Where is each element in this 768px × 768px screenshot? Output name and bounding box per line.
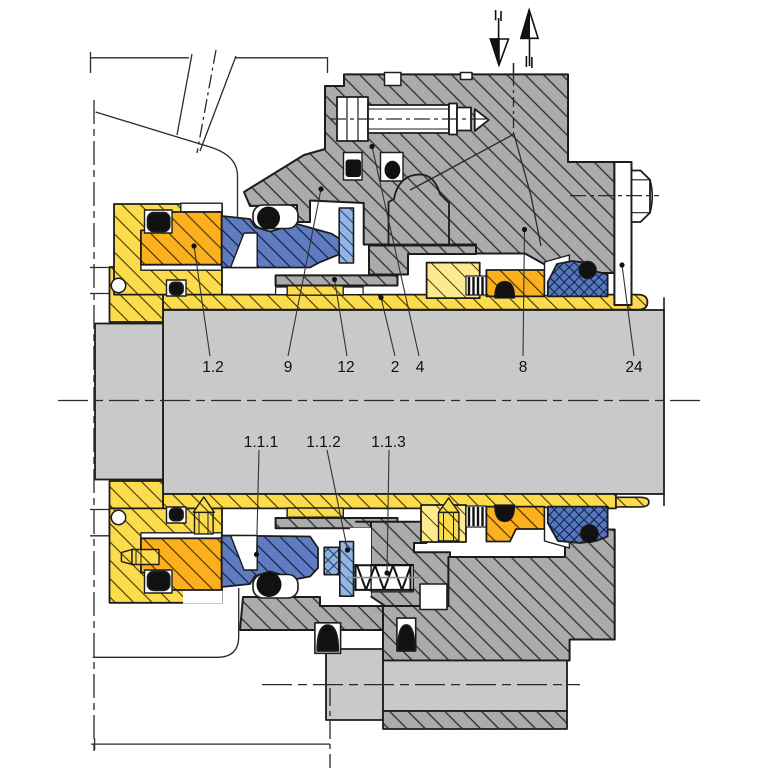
svg-text:2: 2 <box>391 359 400 376</box>
svg-text:12: 12 <box>337 359 354 376</box>
svg-text:1.2: 1.2 <box>202 359 224 376</box>
svg-text:9: 9 <box>284 359 293 376</box>
svg-text:1.1.3: 1.1.3 <box>371 434 405 451</box>
svg-text:1.1.2: 1.1.2 <box>306 434 340 451</box>
svg-text:8: 8 <box>519 359 528 376</box>
svg-text:4: 4 <box>416 359 425 376</box>
svg-text:24: 24 <box>625 359 643 376</box>
svg-text:1.1.1: 1.1.1 <box>244 434 278 451</box>
